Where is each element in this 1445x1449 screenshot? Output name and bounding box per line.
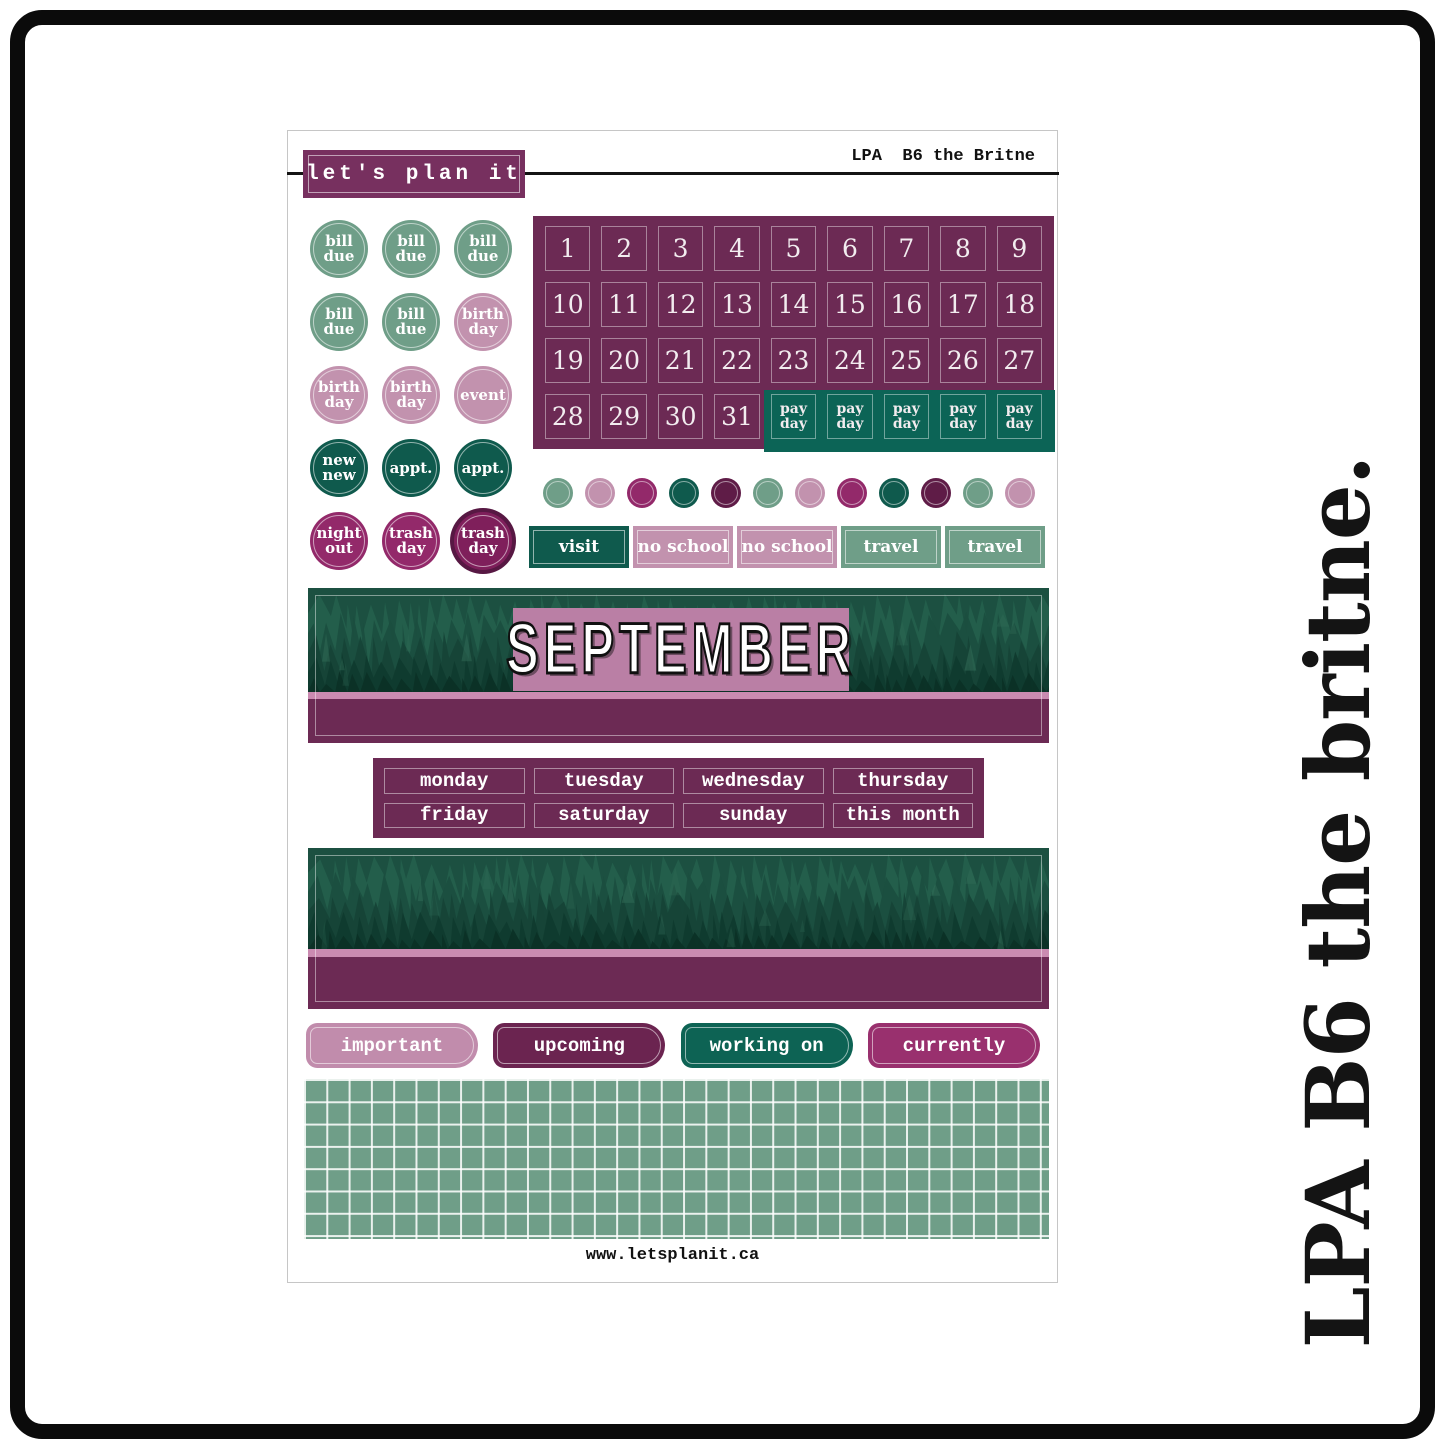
date-number: 18: [1003, 290, 1035, 319]
weekday-label-text: monday: [420, 770, 488, 792]
circle-sticker-appt: appt.: [454, 439, 512, 497]
event-label-text: no school: [637, 537, 728, 557]
date-number: 16: [890, 290, 922, 319]
date-number: 2: [616, 234, 632, 263]
dot-sticker-sage: [543, 478, 573, 508]
date-cell-26: 26: [940, 338, 985, 383]
dot-sticker-mauve: [795, 478, 825, 508]
month-title-box: SEPTEMBER: [513, 608, 849, 691]
circle-sticker-label: new new: [314, 453, 364, 483]
date-cell-31: 31: [714, 394, 759, 439]
date-number: 4: [729, 234, 745, 263]
weekday-label-text: friday: [420, 804, 488, 826]
circle-sticker-bill-due: bill due: [310, 293, 368, 351]
payday-cell: pay day: [940, 394, 985, 439]
circle-sticker-label: birth day: [458, 307, 508, 337]
dot-sticker-plum_dark: [711, 478, 741, 508]
date-number: 15: [834, 290, 866, 319]
circle-sticker-bill-due: bill due: [382, 293, 440, 351]
brand-logo-label: let's plan it: [306, 163, 522, 186]
circle-sticker-label: trash day: [458, 526, 508, 556]
dot-sticker-sage: [753, 478, 783, 508]
dot-sticker-sage: [963, 478, 993, 508]
date-number: 20: [608, 346, 640, 375]
date-number: 25: [890, 346, 922, 375]
payday-cell: pay day: [771, 394, 816, 439]
date-number: 28: [552, 402, 584, 431]
date-number: 7: [898, 234, 914, 263]
plum-band: [308, 699, 1049, 743]
event-label-text: visit: [559, 537, 599, 557]
category-label-important: important: [306, 1023, 478, 1068]
weekday-label-text: this month: [846, 804, 960, 826]
date-cell-30: 30: [658, 394, 703, 439]
date-cell-24: 24: [827, 338, 872, 383]
date-cell-19: 19: [545, 338, 590, 383]
forest-image: [308, 588, 1049, 692]
dot-sticker-row: [543, 478, 1035, 508]
circle-sticker-night-out: night out: [310, 512, 368, 570]
month-title: SEPTEMBER: [506, 609, 856, 690]
weekday-label-wednesday: wednesday: [683, 768, 824, 794]
payday-label: pay day: [1000, 402, 1038, 432]
date-cell-23: 23: [771, 338, 816, 383]
circle-sticker-bill-due: bill due: [454, 220, 512, 278]
sheet-title: LPA B6 the Britne: [851, 147, 1035, 166]
category-label-text: upcoming: [534, 1035, 625, 1057]
date-cell-3: 3: [658, 226, 703, 271]
weekday-label-friday: friday: [384, 803, 525, 829]
event-label-no-school: no school: [737, 526, 837, 568]
weekday-label-text: thursday: [857, 770, 948, 792]
dot-sticker-berry: [627, 478, 657, 508]
payday-cell: pay day: [884, 394, 929, 439]
date-cell-12: 12: [658, 282, 703, 327]
category-label-text: currently: [903, 1035, 1006, 1057]
date-number: 8: [955, 234, 971, 263]
category-label-working-on: working on: [681, 1023, 853, 1068]
date-number: 12: [665, 290, 697, 319]
circle-sticker-birth-day: birth day: [382, 366, 440, 424]
circle-sticker-label: bill due: [314, 234, 364, 264]
side-vertical-title: LPA B6 the britne.: [1286, 456, 1390, 1349]
date-cell-20: 20: [601, 338, 646, 383]
category-label-text: important: [341, 1035, 444, 1057]
date-cell-18: 18: [997, 282, 1042, 327]
circle-sticker-appt: appt.: [382, 439, 440, 497]
date-number: 10: [552, 290, 584, 319]
category-label-text: working on: [710, 1035, 824, 1057]
date-cell-1: 1: [545, 226, 590, 271]
circle-sticker-event: event: [454, 366, 512, 424]
grid-paper-sticker: [304, 1079, 1049, 1239]
circle-sticker-label: birth day: [314, 380, 364, 410]
date-cell-17: 17: [940, 282, 985, 327]
date-number: 24: [834, 346, 866, 375]
date-cell-29: 29: [601, 394, 646, 439]
circle-sticker-label: appt.: [386, 461, 436, 476]
weekday-label-text: wednesday: [702, 770, 805, 792]
date-number: 22: [721, 346, 753, 375]
date-number: 5: [786, 234, 802, 263]
circle-sticker-label: bill due: [386, 307, 436, 337]
weekday-label-saturday: saturday: [534, 803, 675, 829]
date-cell-28: 28: [545, 394, 590, 439]
date-cell-15: 15: [827, 282, 872, 327]
event-label-text: travel: [864, 537, 919, 557]
date-number: 29: [608, 402, 640, 431]
circle-sticker-grid: bill duebill duebill duebill duebill due…: [310, 220, 512, 570]
weekday-label-this-month: this month: [833, 803, 974, 829]
dot-sticker-berry: [837, 478, 867, 508]
forest-photo-strip: [308, 588, 1049, 692]
date-number: 9: [1011, 234, 1027, 263]
circle-sticker-label: bill due: [386, 234, 436, 264]
circle-sticker-label: night out: [314, 526, 364, 556]
date-cell-4: 4: [714, 226, 759, 271]
date-number: 31: [721, 402, 753, 431]
payday-label: pay day: [831, 402, 869, 432]
event-label-no-school: no school: [633, 526, 733, 568]
pink-accent-strip: [308, 692, 1049, 699]
circle-sticker-label: appt.: [458, 461, 508, 476]
date-number: 6: [842, 234, 858, 263]
website-url: www.letsplanit.ca: [288, 1246, 1057, 1265]
weekday-label-thursday: thursday: [833, 768, 974, 794]
date-cell-7: 7: [884, 226, 929, 271]
pink-accent-strip: [308, 949, 1049, 957]
weekday-label-monday: monday: [384, 768, 525, 794]
category-label-row: importantupcomingworking oncurrently: [306, 1023, 1040, 1068]
circle-sticker-birth-day: birth day: [454, 293, 512, 351]
date-cell-13: 13: [714, 282, 759, 327]
weekday-label-tuesday: tuesday: [534, 768, 675, 794]
brand-logo: let's plan it: [303, 150, 525, 198]
forest-photo-strip: [308, 848, 1049, 949]
date-cell-14: 14: [771, 282, 816, 327]
date-cell-9: 9: [997, 226, 1042, 271]
weekday-label-sunday: sunday: [683, 803, 824, 829]
forest-image: [308, 848, 1049, 949]
event-label-text: travel: [968, 537, 1023, 557]
date-number: 30: [665, 402, 697, 431]
payday-cell: pay day: [997, 394, 1042, 439]
date-number: 11: [608, 290, 640, 319]
month-header-banner: SEPTEMBER: [308, 588, 1049, 743]
circle-sticker-bill-due: bill due: [382, 220, 440, 278]
date-number: 26: [947, 346, 979, 375]
circle-sticker-new-new: new new: [310, 439, 368, 497]
date-cell-25: 25: [884, 338, 929, 383]
weekday-label-text: saturday: [558, 804, 649, 826]
date-cell-27: 27: [997, 338, 1042, 383]
blank-header-banner: [308, 848, 1049, 1009]
payday-label: pay day: [774, 402, 812, 432]
circle-sticker-trash-day: trash day: [382, 512, 440, 570]
sticker-sheet: let's plan it LPA B6 the Britne bill due…: [287, 130, 1058, 1283]
category-label-currently: currently: [868, 1023, 1040, 1068]
date-number: 27: [1003, 346, 1035, 375]
event-label-visit: visit: [529, 526, 629, 568]
date-number: 1: [560, 234, 576, 263]
date-cell-21: 21: [658, 338, 703, 383]
circle-sticker-bill-due: bill due: [310, 220, 368, 278]
payday-label: pay day: [944, 402, 982, 432]
circle-sticker-label: event: [458, 388, 508, 403]
date-cell-22: 22: [714, 338, 759, 383]
weekday-label-text: sunday: [719, 804, 787, 826]
weekday-label-text: tuesday: [564, 770, 644, 792]
event-label-text: no school: [741, 537, 832, 557]
circle-sticker-label: birth day: [386, 380, 436, 410]
event-label-travel: travel: [945, 526, 1045, 568]
date-cell-6: 6: [827, 226, 872, 271]
date-number-grid: 1234567891011121314151617181920212223242…: [533, 216, 1054, 449]
circle-sticker-trash-day: trash day: [454, 512, 512, 570]
date-cell-5: 5: [771, 226, 816, 271]
dot-sticker-mauve: [1005, 478, 1035, 508]
dot-sticker-teal: [669, 478, 699, 508]
date-cell-2: 2: [601, 226, 646, 271]
date-number: 14: [778, 290, 810, 319]
date-number: 3: [673, 234, 689, 263]
circle-sticker-birth-day: birth day: [310, 366, 368, 424]
circle-sticker-label: bill due: [314, 307, 364, 337]
circle-sticker-label: bill due: [458, 234, 508, 264]
date-cell-10: 10: [545, 282, 590, 327]
circle-sticker-label: trash day: [386, 526, 436, 556]
plum-band: [308, 957, 1049, 1009]
date-cell-8: 8: [940, 226, 985, 271]
date-cell-11: 11: [601, 282, 646, 327]
date-number: 17: [947, 290, 979, 319]
event-label-row: visitno schoolno schooltraveltravel: [529, 526, 1045, 568]
dot-sticker-mauve: [585, 478, 615, 508]
payday-label: pay day: [887, 402, 925, 432]
date-cell-16: 16: [884, 282, 929, 327]
dot-sticker-teal: [879, 478, 909, 508]
date-number: 23: [778, 346, 810, 375]
date-number: 13: [721, 290, 753, 319]
event-label-travel: travel: [841, 526, 941, 568]
weekday-label-grid: mondaytuesdaywednesdaythursdayfridaysatu…: [373, 758, 984, 838]
date-number: 19: [552, 346, 584, 375]
date-number: 21: [665, 346, 697, 375]
dot-sticker-plum_dark: [921, 478, 951, 508]
category-label-upcoming: upcoming: [493, 1023, 665, 1068]
payday-cell: pay day: [827, 394, 872, 439]
